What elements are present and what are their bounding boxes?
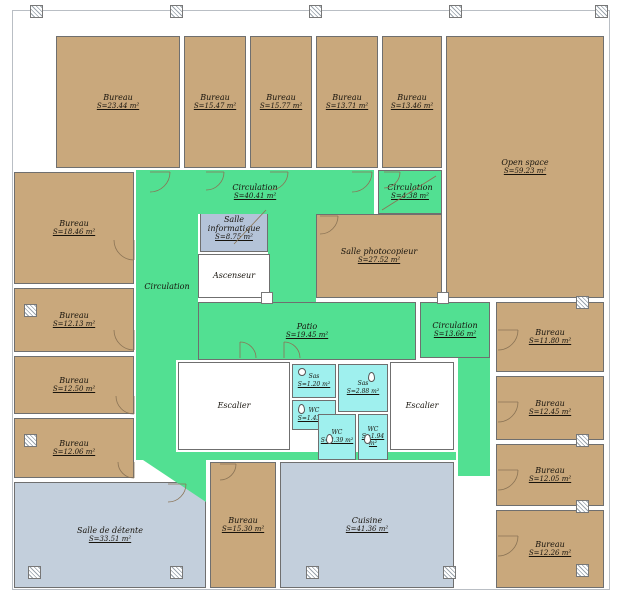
- room-area: S=15.30 m²: [222, 525, 264, 533]
- column-marker: [576, 434, 589, 447]
- column-marker: [576, 296, 589, 309]
- column-marker: [28, 566, 41, 579]
- room-bureau-2344: BureauS=23.44 m²: [56, 36, 180, 168]
- room-area: S=13.71 m²: [326, 102, 368, 110]
- column-marker: [170, 566, 183, 579]
- column-marker: [30, 5, 43, 18]
- room-label: Bureau: [228, 517, 258, 525]
- room-label: Bureau: [200, 94, 230, 102]
- room-area: S=12.26 m²: [529, 549, 571, 557]
- room-open-space: Open spaceS=59.23 m²: [446, 36, 604, 298]
- room-circulation-top: CirculationS=40.41 m²: [136, 170, 374, 214]
- room-label: Salle photocopieur: [341, 248, 417, 256]
- room-label: Salle informatique: [204, 216, 265, 233]
- circulation-fill: [136, 360, 176, 460]
- room-area: S=15.47 m²: [194, 102, 236, 110]
- toilet-icon: [368, 372, 375, 382]
- room-label: Salle de détente: [77, 527, 143, 535]
- room-area: S=41.36 m²: [346, 525, 388, 533]
- room-label: Bureau: [59, 312, 89, 320]
- room-label: Bureau: [59, 377, 89, 385]
- column-marker: [443, 566, 456, 579]
- toilet-icon: [298, 404, 305, 414]
- room-bureau-1213: BureauS=12.13 m²: [14, 288, 134, 352]
- room-area: S=40.41 m²: [234, 192, 276, 200]
- room-area: S=13.46 m²: [391, 102, 433, 110]
- room-area: S=27.52 m²: [358, 256, 400, 264]
- circulation-fill: [268, 214, 316, 302]
- room-label: Bureau: [535, 400, 565, 408]
- room-bureau-1180: BureauS=11.80 m²: [496, 302, 604, 372]
- room-area: S=12.45 m²: [529, 408, 571, 416]
- room-area: S=4.38 m²: [391, 192, 429, 200]
- column-marker: [595, 5, 608, 18]
- room-area: S=23.44 m²: [97, 102, 139, 110]
- wall-junction-marker: [261, 292, 273, 304]
- room-label: Bureau: [266, 94, 296, 102]
- column-marker: [306, 566, 319, 579]
- room-escalier-right: Escalier: [390, 362, 454, 450]
- room-ascenseur: Ascenseur: [198, 254, 270, 298]
- room-label: Bureau: [535, 329, 565, 337]
- room-circulation-438: CirculationS=4.38 m²: [378, 170, 442, 214]
- room-sas-288: SasS=2.88 m²: [338, 364, 388, 412]
- room-label: Bureau: [535, 467, 565, 475]
- room-wc-239: WCS=2.39 m²: [318, 414, 356, 460]
- room-bureau-1250: BureauS=12.50 m²: [14, 356, 134, 414]
- toilet-icon: [326, 434, 333, 444]
- room-label: Bureau: [59, 220, 89, 228]
- room-area: S=33.51 m²: [89, 535, 131, 543]
- room-area: S=12.05 m²: [529, 475, 571, 483]
- room-area: S=12.13 m²: [53, 320, 95, 328]
- room-bureau-1547: BureauS=15.47 m²: [184, 36, 246, 168]
- room-label: Bureau: [535, 541, 565, 549]
- column-marker: [24, 434, 37, 447]
- room-circulation-left: Circulation: [136, 214, 198, 360]
- circulation-fill: [458, 358, 490, 476]
- sink-icon: [298, 368, 306, 376]
- room-bureau-1346: BureauS=13.46 m²: [382, 36, 442, 168]
- room-bureau-1205: BureauS=12.05 m²: [496, 444, 604, 506]
- room-area: S=11.80 m²: [529, 337, 571, 345]
- room-label: Patio: [297, 323, 317, 331]
- room-label: Cuisine: [352, 517, 382, 525]
- room-area: S=12.06 m²: [53, 448, 95, 456]
- room-area: S=13.66 m²: [434, 330, 476, 338]
- room-wc-194: WCS=1.94 m²: [358, 414, 388, 460]
- room-label: Open space: [501, 159, 548, 167]
- room-bureau-1371: BureauS=13.71 m²: [316, 36, 378, 168]
- room-bureau-1245: BureauS=12.45 m²: [496, 376, 604, 440]
- room-area: S=8.75 m²: [215, 233, 253, 241]
- room-bureau-1577: BureauS=15.77 m²: [250, 36, 312, 168]
- column-marker: [449, 5, 462, 18]
- room-label: Circulation: [232, 184, 277, 192]
- room-area: S=15.77 m²: [260, 102, 302, 110]
- floor-plan: BureauS=23.44 m²BureauS=15.47 m²BureauS=…: [0, 0, 623, 600]
- room-label: Bureau: [332, 94, 362, 102]
- column-marker: [576, 500, 589, 513]
- room-escalier-left: Escalier: [178, 362, 290, 450]
- room-label: Circulation: [432, 322, 477, 330]
- wall-junction-marker: [437, 292, 449, 304]
- column-marker: [309, 5, 322, 18]
- room-area: S=18.46 m²: [53, 228, 95, 236]
- column-marker: [170, 5, 183, 18]
- room-label: Bureau: [59, 440, 89, 448]
- room-patio: PatioS=19.45 m²: [198, 302, 416, 360]
- room-label: Escalier: [218, 402, 251, 410]
- room-label: Bureau: [397, 94, 427, 102]
- room-area: S=59.23 m²: [504, 167, 546, 175]
- column-marker: [24, 304, 37, 317]
- room-bureau-1530: BureauS=15.30 m²: [210, 462, 276, 588]
- room-label: Ascenseur: [213, 272, 255, 280]
- room-bureau-1206: BureauS=12.06 m²: [14, 418, 134, 478]
- room-label: Bureau: [103, 94, 133, 102]
- room-salle-photocopieur: Salle photocopieurS=27.52 m²: [316, 214, 442, 298]
- room-label: Escalier: [406, 402, 439, 410]
- room-area: S=19.45 m²: [286, 331, 328, 339]
- toilet-icon: [364, 434, 371, 444]
- room-bureau-1846: BureauS=18.46 m²: [14, 172, 134, 284]
- room-area: S=1.20 m²: [298, 381, 331, 388]
- room-area: S=2.88 m²: [347, 388, 380, 395]
- room-label: Circulation: [144, 283, 189, 291]
- room-label: Circulation: [387, 184, 432, 192]
- column-marker: [576, 564, 589, 577]
- room-circulation-1366: CirculationS=13.66 m²: [420, 302, 490, 358]
- room-area: S=12.50 m²: [53, 385, 95, 393]
